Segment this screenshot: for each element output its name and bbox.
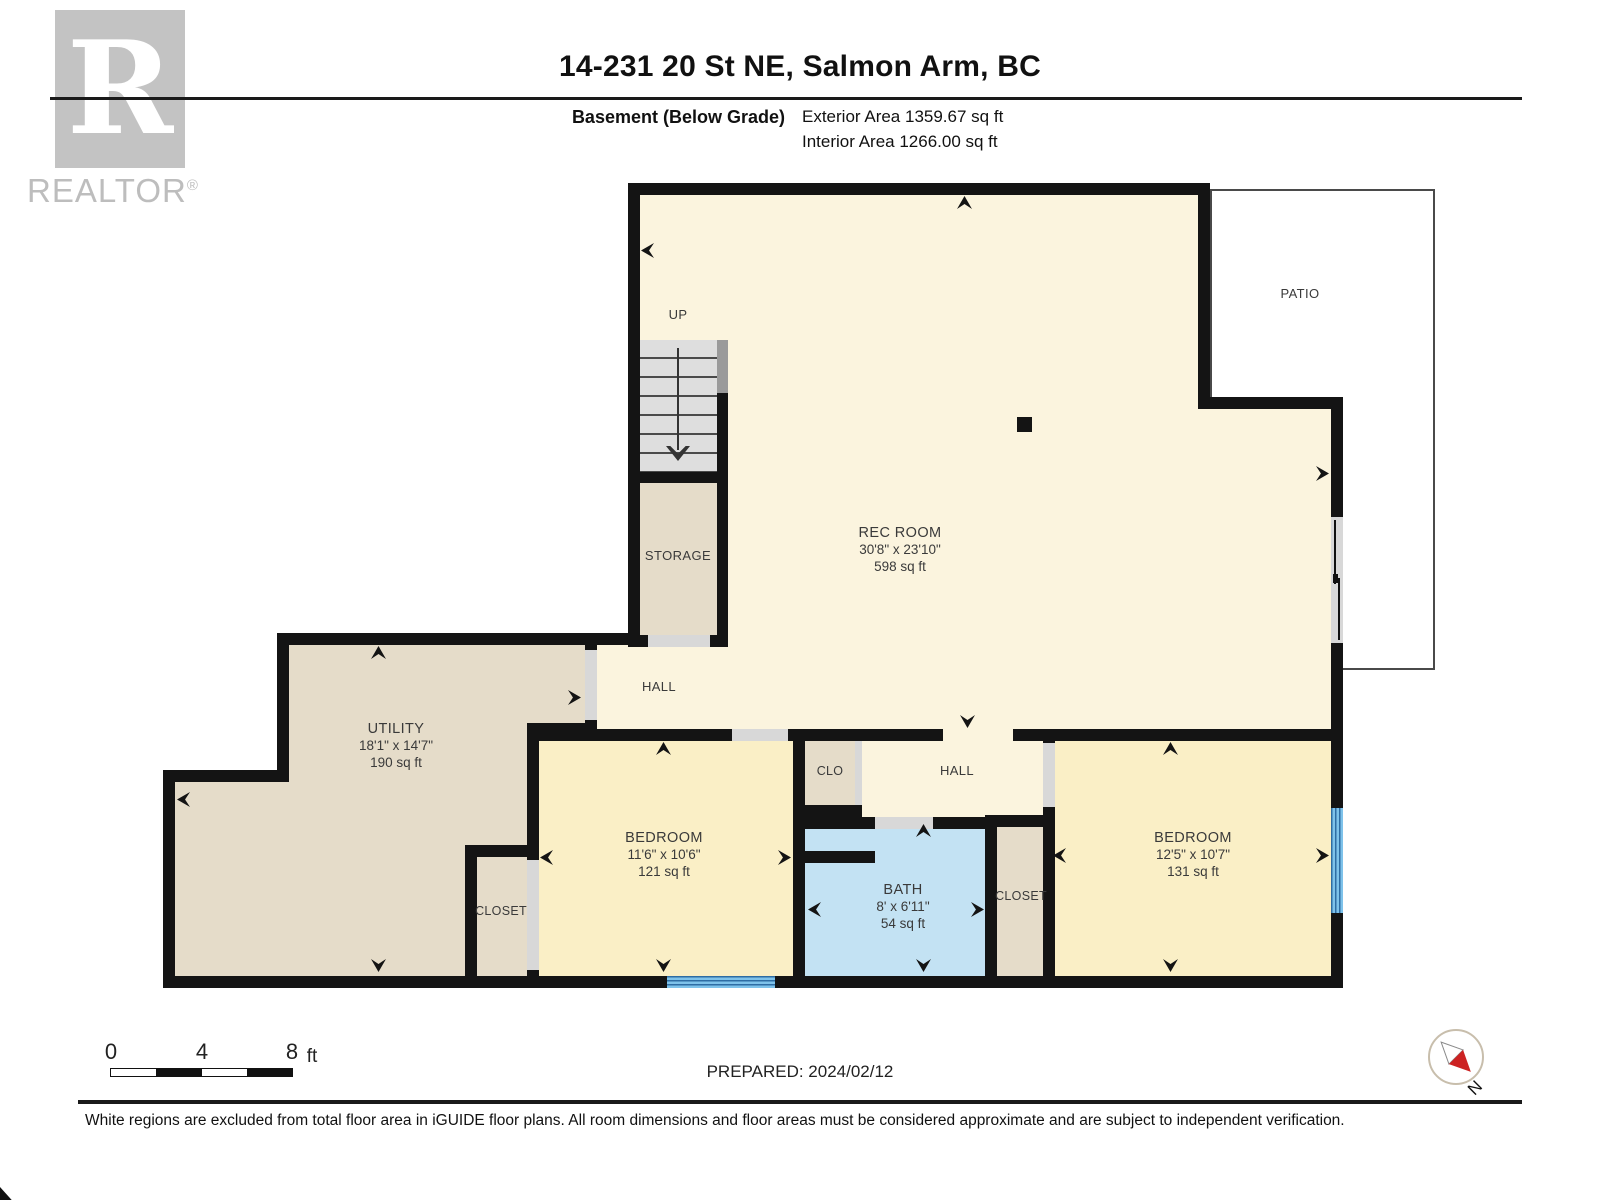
door-opening xyxy=(648,635,710,647)
wall xyxy=(628,183,1210,195)
stair-handrail xyxy=(717,340,728,393)
wall xyxy=(640,472,717,483)
footer-divider xyxy=(78,1100,1522,1104)
compass-needle-icon xyxy=(1416,1017,1495,1096)
wall xyxy=(527,729,732,741)
realtor-logo-r: R xyxy=(67,25,173,153)
bedroom-right-label: BEDROOM 12'5" x 10'7" 131 sq ft xyxy=(1154,830,1232,880)
interior-area: Interior Area 1266.00 sq ft xyxy=(802,132,998,152)
door-opening xyxy=(585,650,597,720)
window xyxy=(1331,808,1343,913)
wall xyxy=(710,635,728,647)
room-fill-utility-1 xyxy=(289,645,585,723)
closet-left-label: CLOSET xyxy=(475,904,527,918)
wall xyxy=(163,770,289,782)
stairs-up-label: UP xyxy=(669,307,688,322)
wall xyxy=(1198,183,1210,409)
floor-plan-page: R REALTOR® 14-231 20 St NE, Salmon Arm, … xyxy=(0,0,1600,1200)
realtor-wordmark: REALTOR® xyxy=(27,172,199,210)
bedroom-left-label: BEDROOM 11'6" x 10'6" 121 sq ft xyxy=(625,830,703,880)
bath-label: BATH 8' x 6'11" 54 sq ft xyxy=(876,882,929,932)
disclaimer-text: White regions are excluded from total fl… xyxy=(85,1112,1385,1130)
door-opening xyxy=(855,741,862,805)
storage-label: STORAGE xyxy=(645,548,711,563)
room-fill-hall-lower xyxy=(855,741,1043,817)
room-fill-utility-4 xyxy=(175,845,465,976)
wall xyxy=(628,635,648,647)
page-title: 14-231 20 St NE, Salmon Arm, BC xyxy=(0,50,1600,84)
wall xyxy=(1331,643,1343,808)
wall xyxy=(1013,729,1343,741)
door-opening xyxy=(732,729,788,741)
registered-mark: ® xyxy=(187,177,199,194)
exterior-area: Exterior Area 1359.67 sq ft xyxy=(802,107,1003,127)
prepared-date: PREPARED: 2024/02/12 xyxy=(0,1062,1600,1082)
wall xyxy=(793,805,862,817)
wall xyxy=(717,393,728,647)
wall xyxy=(793,729,805,976)
support-column xyxy=(1017,417,1032,432)
header-divider xyxy=(50,97,1522,100)
patio-label: PATIO xyxy=(1280,286,1319,301)
rec-room-label: REC ROOM 30'8" x 23'10" 598 sq ft xyxy=(859,525,942,575)
door-opening xyxy=(1043,743,1055,807)
closet-right-label: CLOSET xyxy=(995,889,1047,903)
wall xyxy=(805,851,875,863)
wall xyxy=(1198,397,1343,409)
sliding-door-latch xyxy=(1333,574,1338,583)
door-opening xyxy=(527,860,539,970)
floor-label: Basement (Below Grade) xyxy=(385,107,785,128)
utility-label: UTILITY 18'1" x 14'7" 190 sq ft xyxy=(359,721,433,771)
wall xyxy=(788,729,943,741)
staircase xyxy=(640,340,717,472)
stair-direction-line xyxy=(677,348,679,450)
clo-label: CLO xyxy=(817,764,844,778)
sliding-door-panel xyxy=(1338,578,1340,640)
room-fill-hall-gap xyxy=(943,729,1013,741)
wall xyxy=(1331,397,1343,517)
wall xyxy=(628,183,640,645)
corner-mark xyxy=(0,1187,13,1200)
room-fill-utility-3 xyxy=(175,782,289,845)
wall xyxy=(277,633,289,782)
realtor-logo: R xyxy=(55,10,185,168)
room-fill-rec-lower xyxy=(728,409,1331,729)
wall xyxy=(163,770,175,988)
hall-upper-label: HALL xyxy=(642,679,676,694)
window xyxy=(667,976,775,988)
hall-lower-label: HALL xyxy=(940,763,974,778)
